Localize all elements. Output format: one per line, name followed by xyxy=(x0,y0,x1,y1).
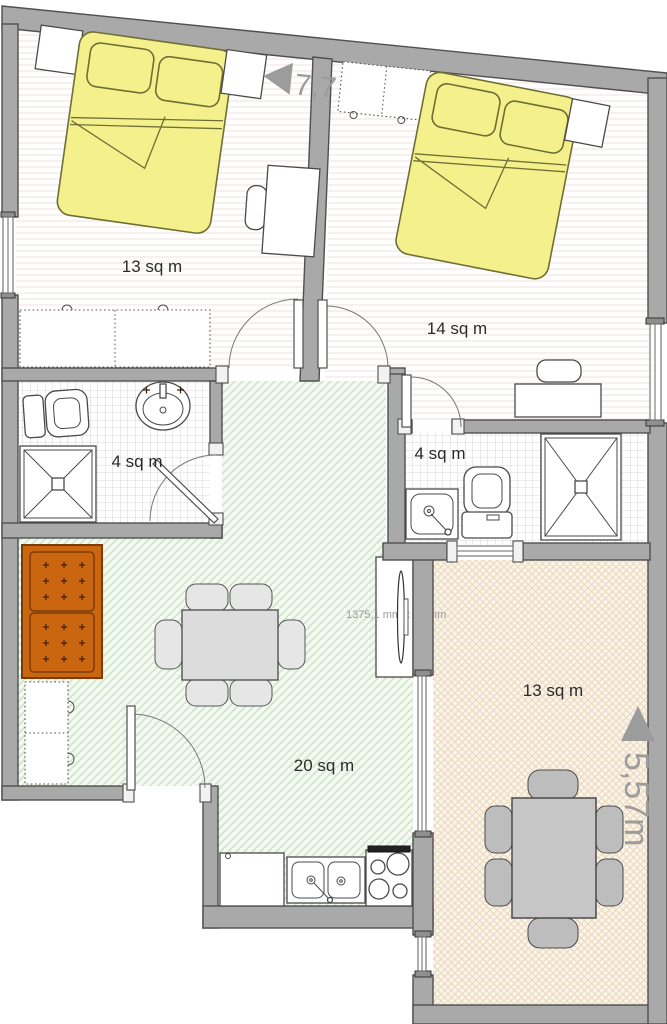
area-label-bedroom-left: 13 sq m xyxy=(122,257,182,276)
sink xyxy=(136,382,190,430)
desk xyxy=(515,384,601,417)
floor-plan-page: 1375,1 mm x 00 mm xyxy=(0,0,667,1024)
wall-bathroom-right-bottom-b xyxy=(523,543,650,560)
sofa xyxy=(22,545,102,678)
wall-bathroom-right-top-b xyxy=(452,420,650,433)
chair xyxy=(186,584,228,611)
wall-bathroom-left-right-a xyxy=(210,381,222,451)
wall-bedroom-left-bottom xyxy=(2,368,222,381)
wall-right-upper xyxy=(648,78,667,323)
toilet xyxy=(462,467,512,538)
pillow xyxy=(86,42,156,94)
kitchen-sink xyxy=(287,857,365,903)
nightstand xyxy=(565,99,610,147)
area-label-bathroom-right: 4 sq m xyxy=(414,444,465,463)
area-label-bedroom-right: 14 sq m xyxy=(427,319,487,338)
sink xyxy=(406,489,458,539)
width-dimension-label: 7,7 xyxy=(293,68,338,105)
storage-cabinet xyxy=(25,682,74,784)
wall-left-upper xyxy=(2,24,18,217)
floor-plan-canvas: 1375,1 mm x 00 mm xyxy=(0,0,667,1024)
pillow xyxy=(154,55,224,107)
table-top xyxy=(512,798,596,918)
wall-terrace-bottom xyxy=(413,1005,667,1024)
toilet xyxy=(22,389,89,439)
wall-bottom-left xyxy=(2,786,128,800)
area-label-terrace: 13 sq m xyxy=(523,681,583,700)
area-label-living-room: 20 sq m xyxy=(294,756,354,775)
chair xyxy=(528,770,578,800)
wall-bathroom-left-bottom xyxy=(2,523,222,538)
chair xyxy=(485,859,512,906)
wall-terrace-left-b xyxy=(413,833,433,935)
chair xyxy=(230,584,272,611)
table-top xyxy=(182,610,278,680)
chair xyxy=(485,806,512,853)
window-terrace-upper xyxy=(415,670,431,837)
chair xyxy=(155,620,182,669)
chair xyxy=(186,679,228,706)
window-terrace-lower xyxy=(415,931,431,977)
shower xyxy=(20,446,96,522)
kitchen-cabinet xyxy=(220,853,284,906)
chair xyxy=(596,859,623,906)
desk-chair xyxy=(537,360,581,382)
closet xyxy=(20,305,210,367)
chair xyxy=(278,620,305,669)
height-dimension-label: 5,57m xyxy=(617,752,655,847)
hallway-floor xyxy=(222,381,386,543)
wall-bathroom-right-bottom-a xyxy=(383,543,447,560)
shower xyxy=(541,434,621,540)
window-bedroom-left xyxy=(1,212,15,298)
stove xyxy=(366,846,412,906)
chair xyxy=(528,918,578,948)
double-bed xyxy=(56,30,235,235)
chair xyxy=(230,679,272,706)
wall-kitchen-bottom xyxy=(203,906,433,928)
area-label-bathroom-left: 4 sq m xyxy=(111,452,162,471)
wall-terrace-left-a xyxy=(413,557,433,675)
nightstand xyxy=(221,50,267,99)
wall-right-lower xyxy=(648,423,667,1024)
